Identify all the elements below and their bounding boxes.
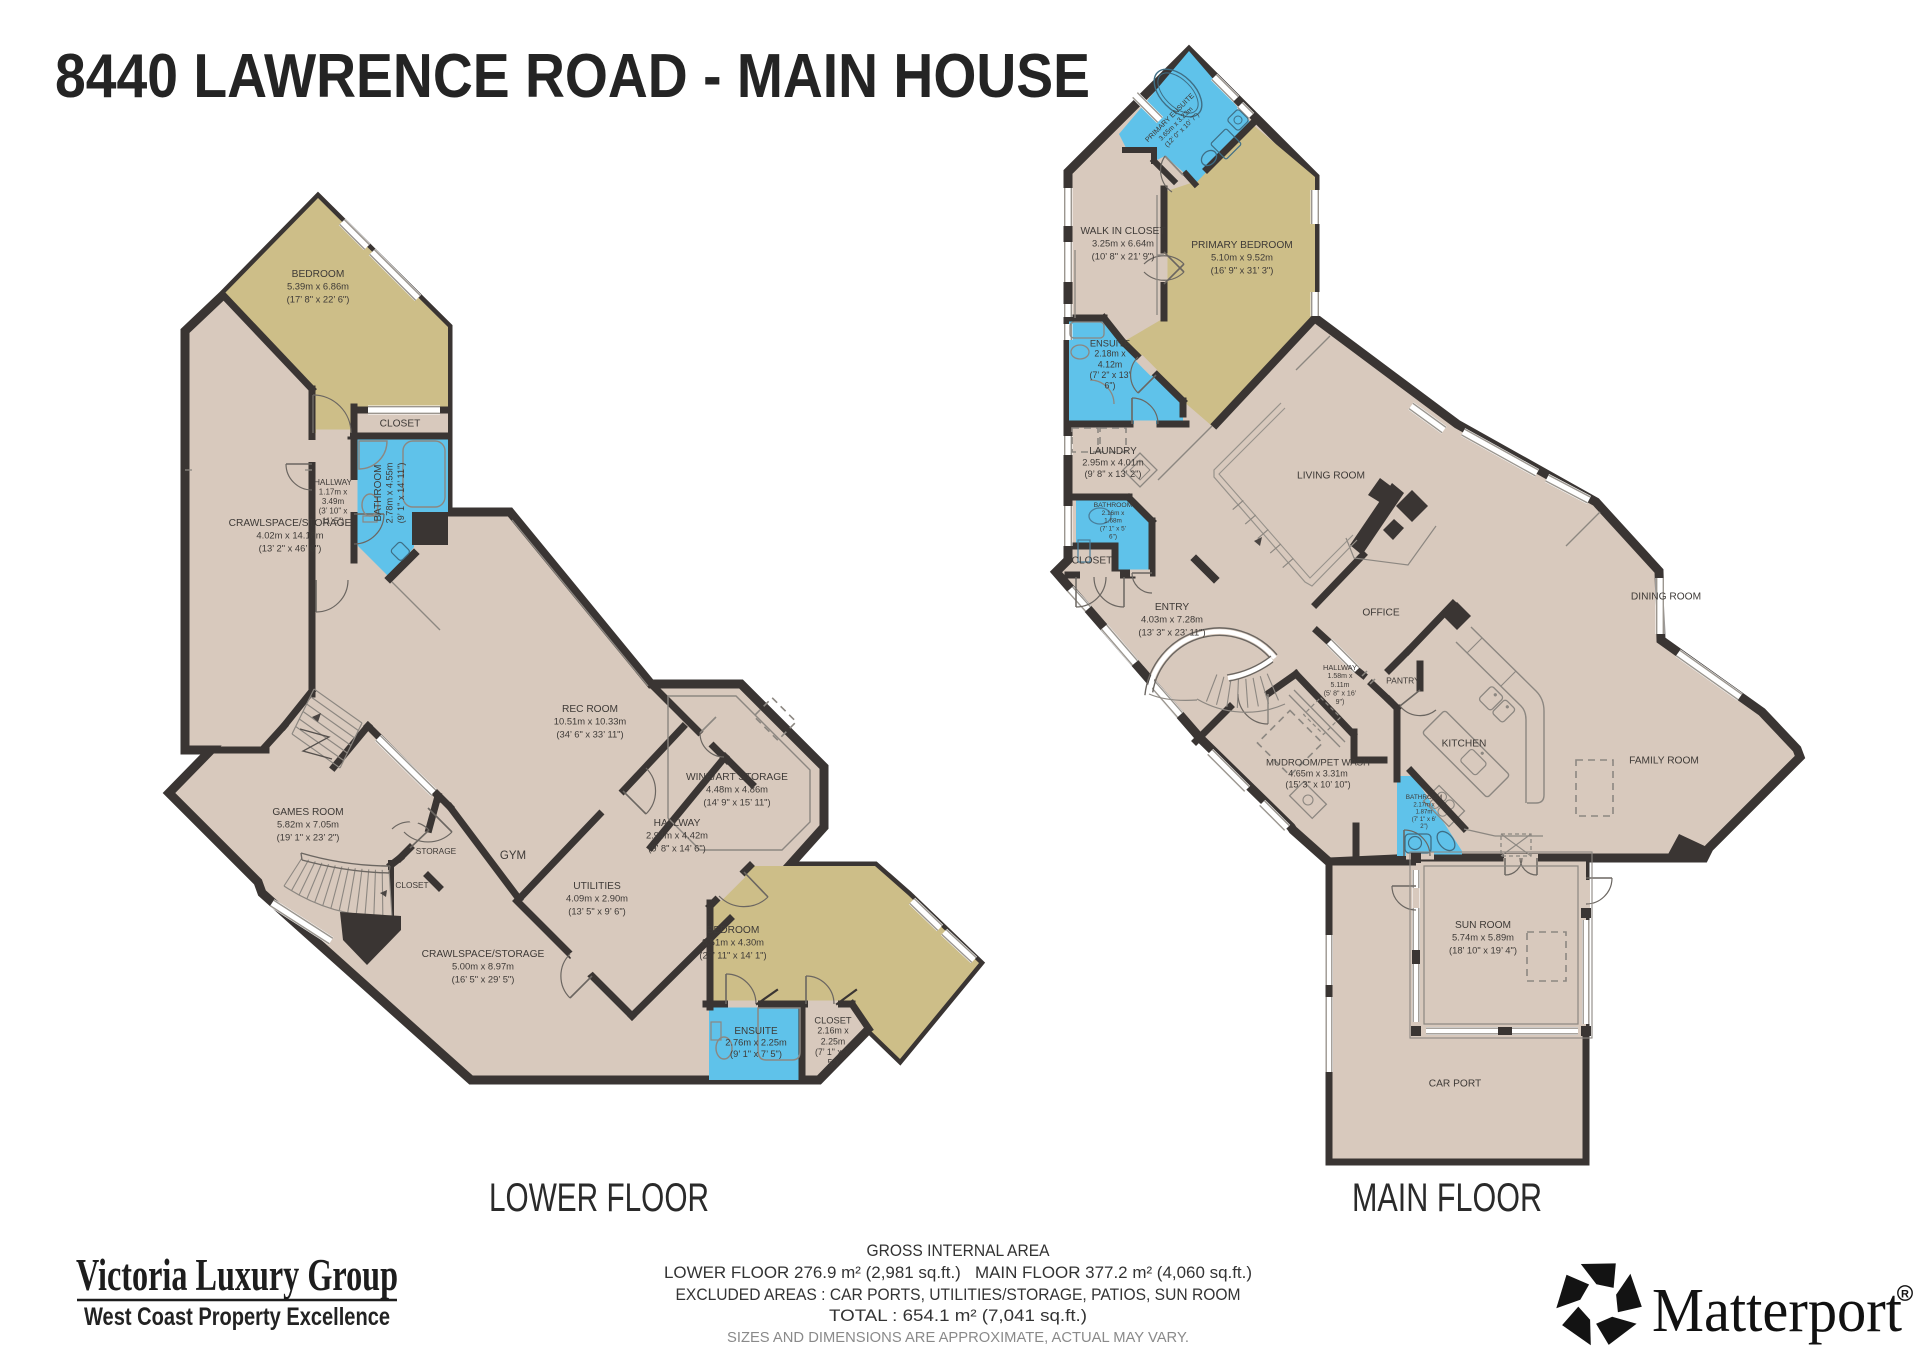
svg-text:BEDROOM: BEDROOM [707, 925, 760, 936]
svg-text:2.16m x: 2.16m x [1102, 510, 1126, 517]
svg-text:BATHROOM: BATHROOM [1094, 502, 1133, 509]
svg-text:(9’ 8" x 13’ 2"): (9’ 8" x 13’ 2") [1084, 469, 1141, 479]
svg-text:(13’ 5" x 9’ 6"): (13’ 5" x 9’ 6") [568, 905, 626, 916]
svg-text:Matterport: Matterport [1652, 1277, 1902, 1345]
svg-text:2.16m x: 2.16m x [817, 1026, 849, 1036]
svg-text:(9’ 1" x 7’ 5"): (9’ 1" x 7’ 5") [730, 1049, 782, 1059]
svg-text:MAIN FLOOR: MAIN FLOOR [1352, 1176, 1542, 1220]
svg-text:OFFICE: OFFICE [1362, 608, 1400, 619]
svg-text:KITCHEN: KITCHEN [1442, 739, 1487, 750]
svg-text:9"): 9") [1336, 699, 1345, 706]
svg-text:SIZES AND DIMENSIONS ARE APPRO: SIZES AND DIMENSIONS ARE APPROXIMATE, AC… [727, 1330, 1189, 1346]
svg-text:5.00m x 8.97m: 5.00m x 8.97m [452, 960, 514, 971]
svg-text:STORAGE: STORAGE [416, 846, 457, 856]
svg-text:DINING ROOM: DINING ROOM [1631, 592, 1701, 603]
svg-text:(17’ 8" x 22’ 6"): (17’ 8" x 22’ 6") [287, 293, 350, 304]
svg-text:ENSUITE: ENSUITE [734, 1026, 778, 1037]
svg-text:SUN ROOM: SUN ROOM [1455, 920, 1511, 931]
svg-text:5.74m x 5.89m: 5.74m x 5.89m [1452, 931, 1514, 942]
svg-text:LAUNDRY: LAUNDRY [1089, 446, 1137, 457]
svg-text:1.87m: 1.87m [1416, 810, 1433, 816]
svg-text:(9’ 8" x 14’ 6"): (9’ 8" x 14’ 6") [648, 842, 706, 853]
svg-text:6"): 6") [1105, 381, 1116, 391]
svg-text:PANTRY: PANTRY [1386, 675, 1420, 685]
svg-text:CLOSET: CLOSET [380, 419, 421, 430]
svg-text:2.94m x 4.42m: 2.94m x 4.42m [646, 829, 708, 840]
svg-text:3.25m x 6.64m: 3.25m x 6.64m [1092, 237, 1154, 248]
svg-text:2.18m x: 2.18m x [1094, 349, 1126, 359]
svg-text:Victoria Luxury Group: Victoria Luxury Group [76, 1250, 398, 1300]
svg-text:8440 LAWRENCE ROAD - MAIN HOUS: 8440 LAWRENCE ROAD - MAIN HOUSE [55, 42, 1090, 111]
svg-text:West Coast Property Excellence: West Coast Property Excellence [84, 1303, 390, 1331]
svg-text:(7’ 1" x 5’: (7’ 1" x 5’ [1100, 525, 1127, 532]
svg-text:4.02m x 14.18m: 4.02m x 14.18m [256, 529, 323, 540]
svg-text:(15’ 3" x 10’ 10"): (15’ 3" x 10’ 10") [1285, 779, 1350, 789]
svg-text:LOWER FLOOR: LOWER FLOOR [489, 1176, 709, 1220]
svg-text:8.51m x 4.30m: 8.51m x 4.30m [702, 936, 764, 947]
svg-text:1.17m x: 1.17m x [319, 488, 347, 497]
svg-text:(27’ 11" x 14’ 1"): (27’ 11" x 14’ 1") [699, 949, 766, 960]
svg-text:BATHROOM: BATHROOM [1406, 794, 1442, 801]
svg-text:FAMILY ROOM: FAMILY ROOM [1629, 756, 1699, 767]
svg-text:1.68m: 1.68m [1104, 518, 1122, 525]
svg-text:(7’ 2" x 13’: (7’ 2" x 13’ [1090, 370, 1131, 380]
svg-text:(10’ 8" x 21’ 9"): (10’ 8" x 21’ 9") [1092, 250, 1155, 261]
svg-text:5.82m x 7.05m: 5.82m x 7.05m [277, 818, 339, 829]
svg-text:(5’ 8" x 16’: (5’ 8" x 16’ [1324, 690, 1357, 697]
svg-text:2"): 2") [1420, 824, 1427, 830]
svg-text:(34’ 6" x 33’ 11"): (34’ 6" x 33’ 11") [556, 728, 623, 739]
svg-text:2.78m x 4.55m: 2.78m x 4.55m [384, 462, 394, 523]
svg-text:GROSS INTERNAL AREA: GROSS INTERNAL AREA [867, 1242, 1050, 1260]
svg-text:ENTRY: ENTRY [1155, 602, 1190, 613]
svg-text:HALLWAY: HALLWAY [1323, 663, 1357, 672]
svg-text:2.76m x 2.25m: 2.76m x 2.25m [725, 1037, 787, 1047]
svg-text:(19’ 1" x 23’ 2"): (19’ 1" x 23’ 2") [277, 831, 340, 842]
svg-text:LOWER FLOOR 276.9 m² (2,981 sq: LOWER FLOOR 276.9 m² (2,981 sq.ft.) MAIN… [664, 1264, 1252, 1282]
svg-text:(13’ 3" x 23’ 11"): (13’ 3" x 23’ 11") [1138, 626, 1205, 637]
svg-text:5"): 5") [828, 1058, 839, 1068]
svg-text:5.10m x 9.52m: 5.10m x 9.52m [1211, 251, 1273, 262]
svg-text:REC ROOM: REC ROOM [562, 704, 618, 715]
svg-text:1.58m x: 1.58m x [1328, 673, 1353, 680]
svg-text:CLOSET: CLOSET [1072, 556, 1113, 567]
svg-text:2.25m: 2.25m [821, 1036, 845, 1046]
svg-text:4.09m x 2.90m: 4.09m x 2.90m [566, 892, 628, 903]
svg-text:10.51m x 10.33m: 10.51m x 10.33m [554, 715, 627, 726]
svg-text:(7’ 1" x 7’: (7’ 1" x 7’ [815, 1047, 851, 1057]
svg-text:GYM: GYM [500, 850, 526, 862]
svg-text:(13’ 2" x 46’ 6"): (13’ 2" x 46’ 6") [259, 542, 322, 553]
svg-text:4.48m x 4.86m: 4.48m x 4.86m [706, 783, 768, 794]
svg-text:ENSUITE: ENSUITE [1090, 338, 1130, 348]
svg-text:4.03m x 7.28m: 4.03m x 7.28m [1141, 613, 1203, 624]
svg-text:(16’ 5" x 29’ 5"): (16’ 5" x 29’ 5") [452, 973, 515, 984]
svg-text:(16’ 9" x 31’ 3"): (16’ 9" x 31’ 3") [1211, 264, 1274, 275]
svg-text:6"): 6") [1109, 533, 1117, 540]
svg-text:5.11m: 5.11m [1331, 682, 1350, 689]
svg-text:HALLWAY: HALLWAY [654, 818, 701, 829]
svg-text:BATHROOM: BATHROOM [373, 464, 384, 521]
svg-text:EXCLUDED AREAS : CAR PORTS, U: EXCLUDED AREAS : CAR PORTS, UTILITIES/ST… [676, 1286, 1241, 1304]
svg-text:LIVING ROOM: LIVING ROOM [1297, 471, 1365, 482]
svg-text:GAMES ROOM: GAMES ROOM [272, 807, 343, 818]
svg-text:TOTAL : 654.1 m² (7,041 sq.ft: TOTAL : 654.1 m² (7,041 sq.ft.) [829, 1307, 1087, 1325]
svg-text:(3’ 10" x: (3’ 10" x [319, 507, 348, 516]
svg-text:3.49m: 3.49m [322, 497, 345, 506]
svg-text:2.17m x: 2.17m x [1413, 802, 1434, 808]
svg-text:4.12m: 4.12m [1098, 359, 1122, 369]
svg-text:HALLWAY: HALLWAY [314, 477, 353, 487]
svg-text:2.95m x 4.01m: 2.95m x 4.01m [1082, 457, 1144, 467]
svg-text:CRAWLSPACE/STORAGE: CRAWLSPACE/STORAGE [422, 949, 545, 960]
svg-text:BEDROOM: BEDROOM [292, 269, 345, 280]
svg-text:R: R [1901, 1289, 1909, 1301]
svg-text:PRIMARY BEDROOM: PRIMARY BEDROOM [1191, 240, 1293, 251]
svg-text:4.65m x 3.31m: 4.65m x 3.31m [1288, 768, 1348, 778]
svg-text:(14’ 9" x 15’ 11"): (14’ 9" x 15’ 11") [703, 796, 770, 807]
svg-text:5.39m x 6.86m: 5.39m x 6.86m [287, 280, 349, 291]
svg-text:WALK IN CLOSET: WALK IN CLOSET [1080, 226, 1165, 237]
svg-text:CAR PORT: CAR PORT [1429, 1079, 1481, 1090]
svg-text:MUDROOM/PET WASH: MUDROOM/PET WASH [1266, 758, 1370, 769]
svg-text:WINE/ART STORAGE: WINE/ART STORAGE [686, 772, 788, 783]
svg-text:UTILITIES: UTILITIES [573, 881, 621, 892]
svg-text:CLOSET: CLOSET [814, 1015, 852, 1025]
svg-text:(9’ 1" x 14’ 11"): (9’ 1" x 14’ 11") [396, 463, 406, 524]
svg-text:(7’ 1" x 6’: (7’ 1" x 6’ [1412, 817, 1437, 823]
svg-text:CRAWLSPACE/STORAGE: CRAWLSPACE/STORAGE [229, 518, 352, 529]
svg-text:(18’ 10" x 19’ 4"): (18’ 10" x 19’ 4") [1449, 944, 1517, 955]
svg-text:CLOSET: CLOSET [395, 880, 428, 890]
